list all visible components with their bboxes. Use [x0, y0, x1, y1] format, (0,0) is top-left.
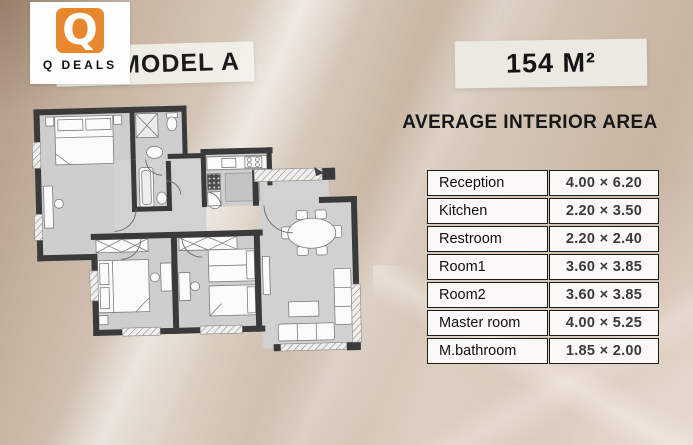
model-label: MODEL A	[119, 47, 241, 79]
room-name-cell: Restroom	[427, 226, 548, 252]
table-row: Room2 3.60 × 3.85	[427, 282, 659, 308]
flyer-background: MODEL A Q Q DEALS 154 M² AVERAGE INTERIO…	[0, 0, 693, 445]
room-name-cell: Room1	[427, 254, 548, 280]
room-size-cell: 1.85 × 2.00	[549, 338, 659, 364]
kitchen-counter	[207, 155, 267, 170]
table-title: AVERAGE INTERIOR AREA	[401, 112, 659, 134]
table-row: Kitchen 2.20 × 3.50	[427, 198, 659, 224]
room-size-cell: 3.60 × 3.85	[549, 282, 659, 308]
brand-name: Q DEALS	[43, 58, 117, 72]
interior-area-table: Reception 4.00 × 6.20 Kitchen 2.20 × 3.5…	[427, 170, 659, 366]
room2-bed-1	[208, 249, 256, 282]
room-size-cell: 2.20 × 3.50	[549, 198, 659, 224]
area-label: 154 M²	[506, 47, 596, 79]
room-size-cell: 2.20 × 2.40	[549, 226, 659, 252]
q-monogram: Q	[62, 9, 98, 51]
room-size-cell: 4.00 × 6.20	[549, 170, 659, 196]
table-row: Room1 3.60 × 3.85	[427, 254, 659, 280]
sofa-right	[334, 268, 352, 324]
sofa-bottom	[278, 323, 334, 341]
room-name-cell: M.bathroom	[427, 338, 548, 364]
room-size-cell: 3.60 × 3.85	[549, 254, 659, 280]
table-row: Reception 4.00 × 6.20	[427, 170, 659, 196]
entry-walkway	[254, 168, 322, 182]
table-row: M.bathroom 1.85 × 2.00	[427, 338, 659, 364]
room1-wardrobe	[96, 239, 148, 253]
master-bed	[46, 115, 123, 165]
logo-card: Q Q DEALS	[30, 2, 130, 84]
room2-bed-2	[209, 285, 257, 316]
bathroom-sink	[146, 146, 162, 158]
area-banner: 154 M²	[455, 39, 648, 89]
floor-plan-svg	[20, 100, 392, 388]
room-name-cell: Master room	[427, 310, 548, 336]
tv-console	[262, 256, 270, 294]
table-row: Restroom 2.20 × 2.40	[427, 226, 659, 252]
floor-plan	[20, 100, 392, 388]
room-name-cell: Kitchen	[427, 198, 548, 224]
shower	[136, 113, 159, 138]
room-name-cell: Room2	[427, 282, 548, 308]
table-row: Master room 4.00 × 5.25	[427, 310, 659, 336]
room-name-cell: Reception	[427, 170, 548, 196]
room-size-cell: 4.00 × 5.25	[549, 310, 659, 336]
bathtub	[139, 167, 154, 207]
toilet-2	[157, 192, 167, 204]
coffee-table	[289, 301, 319, 317]
q-logo-icon: Q	[56, 8, 104, 53]
room2-wardrobe	[179, 236, 237, 251]
kitchen-stove	[207, 174, 220, 190]
